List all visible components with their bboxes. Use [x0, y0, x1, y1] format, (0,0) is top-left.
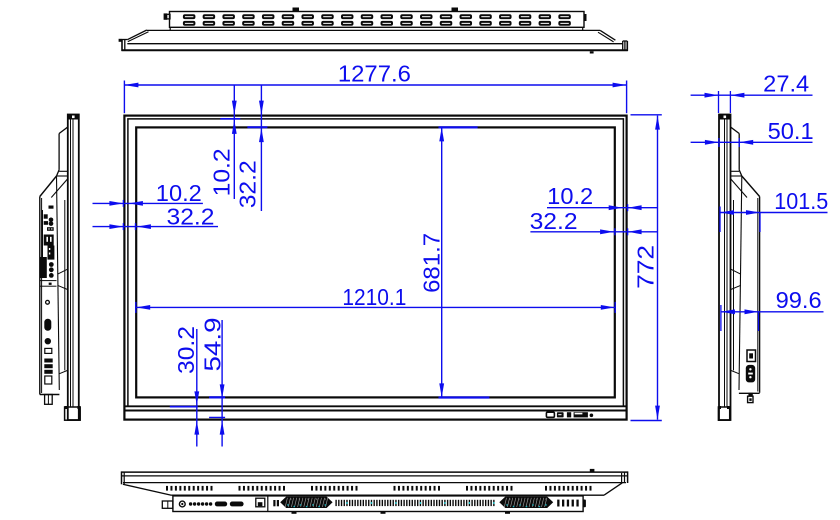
svg-text:10.2: 10.2	[547, 183, 593, 209]
svg-text:10.2: 10.2	[209, 148, 235, 196]
svg-text:1210.1: 1210.1	[342, 284, 406, 310]
svg-text:32.2: 32.2	[167, 203, 215, 229]
svg-text:99.6: 99.6	[776, 287, 822, 313]
svg-text:772: 772	[633, 245, 659, 289]
svg-text:10.2: 10.2	[156, 180, 202, 206]
svg-text:681.7: 681.7	[419, 233, 445, 293]
svg-text:32.2: 32.2	[235, 160, 261, 208]
svg-text:1277.6: 1277.6	[338, 61, 411, 87]
svg-text:54.9: 54.9	[200, 318, 226, 372]
svg-text:50.1: 50.1	[768, 118, 814, 144]
svg-text:101.5: 101.5	[774, 188, 828, 214]
svg-text:27.4: 27.4	[763, 70, 809, 96]
svg-text:30.2: 30.2	[173, 326, 199, 374]
svg-text:32.2: 32.2	[530, 208, 578, 234]
